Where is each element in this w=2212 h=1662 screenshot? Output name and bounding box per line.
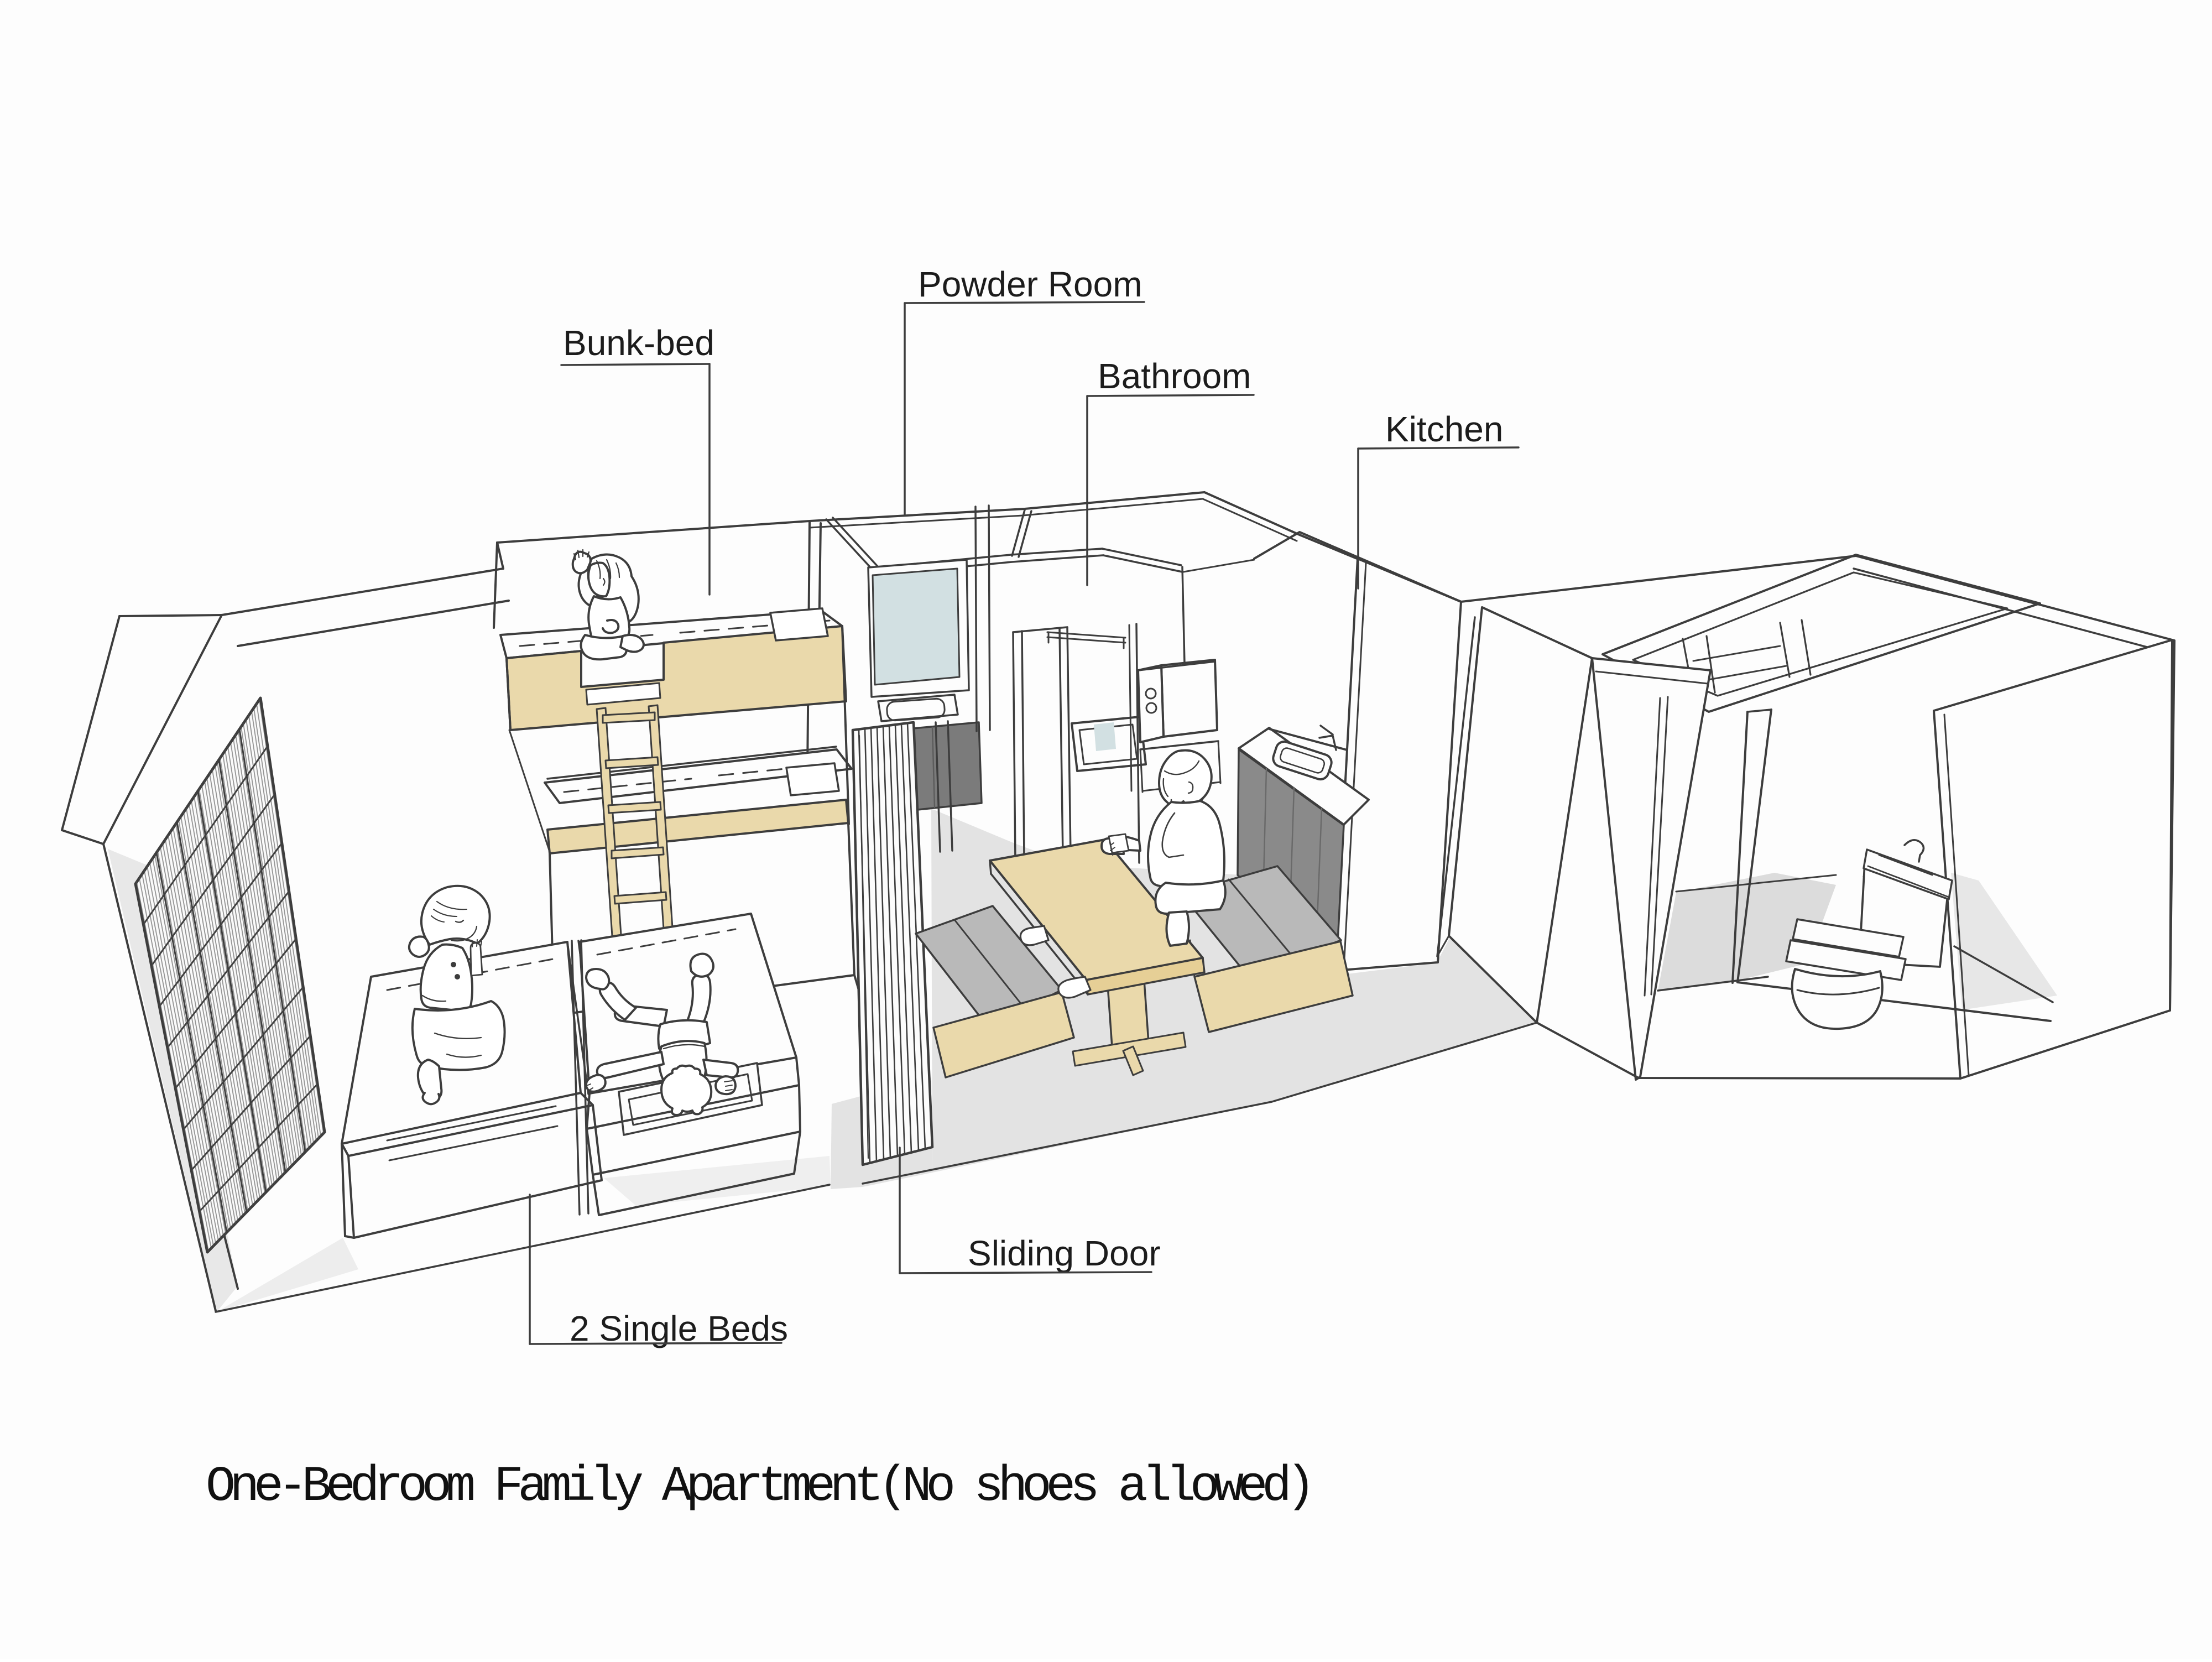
- svg-text:One-Bedroom Family Apartment(N: One-Bedroom Family Apartment(No shoes al…: [206, 1459, 1310, 1515]
- svg-text:Sliding Door: Sliding Door: [968, 1233, 1161, 1273]
- svg-text:Kitchen: Kitchen: [1385, 409, 1503, 449]
- svg-text:Bunk-bed: Bunk-bed: [563, 323, 714, 363]
- svg-text:Powder Room: Powder Room: [918, 264, 1142, 304]
- svg-text:Bathroom: Bathroom: [1098, 356, 1251, 396]
